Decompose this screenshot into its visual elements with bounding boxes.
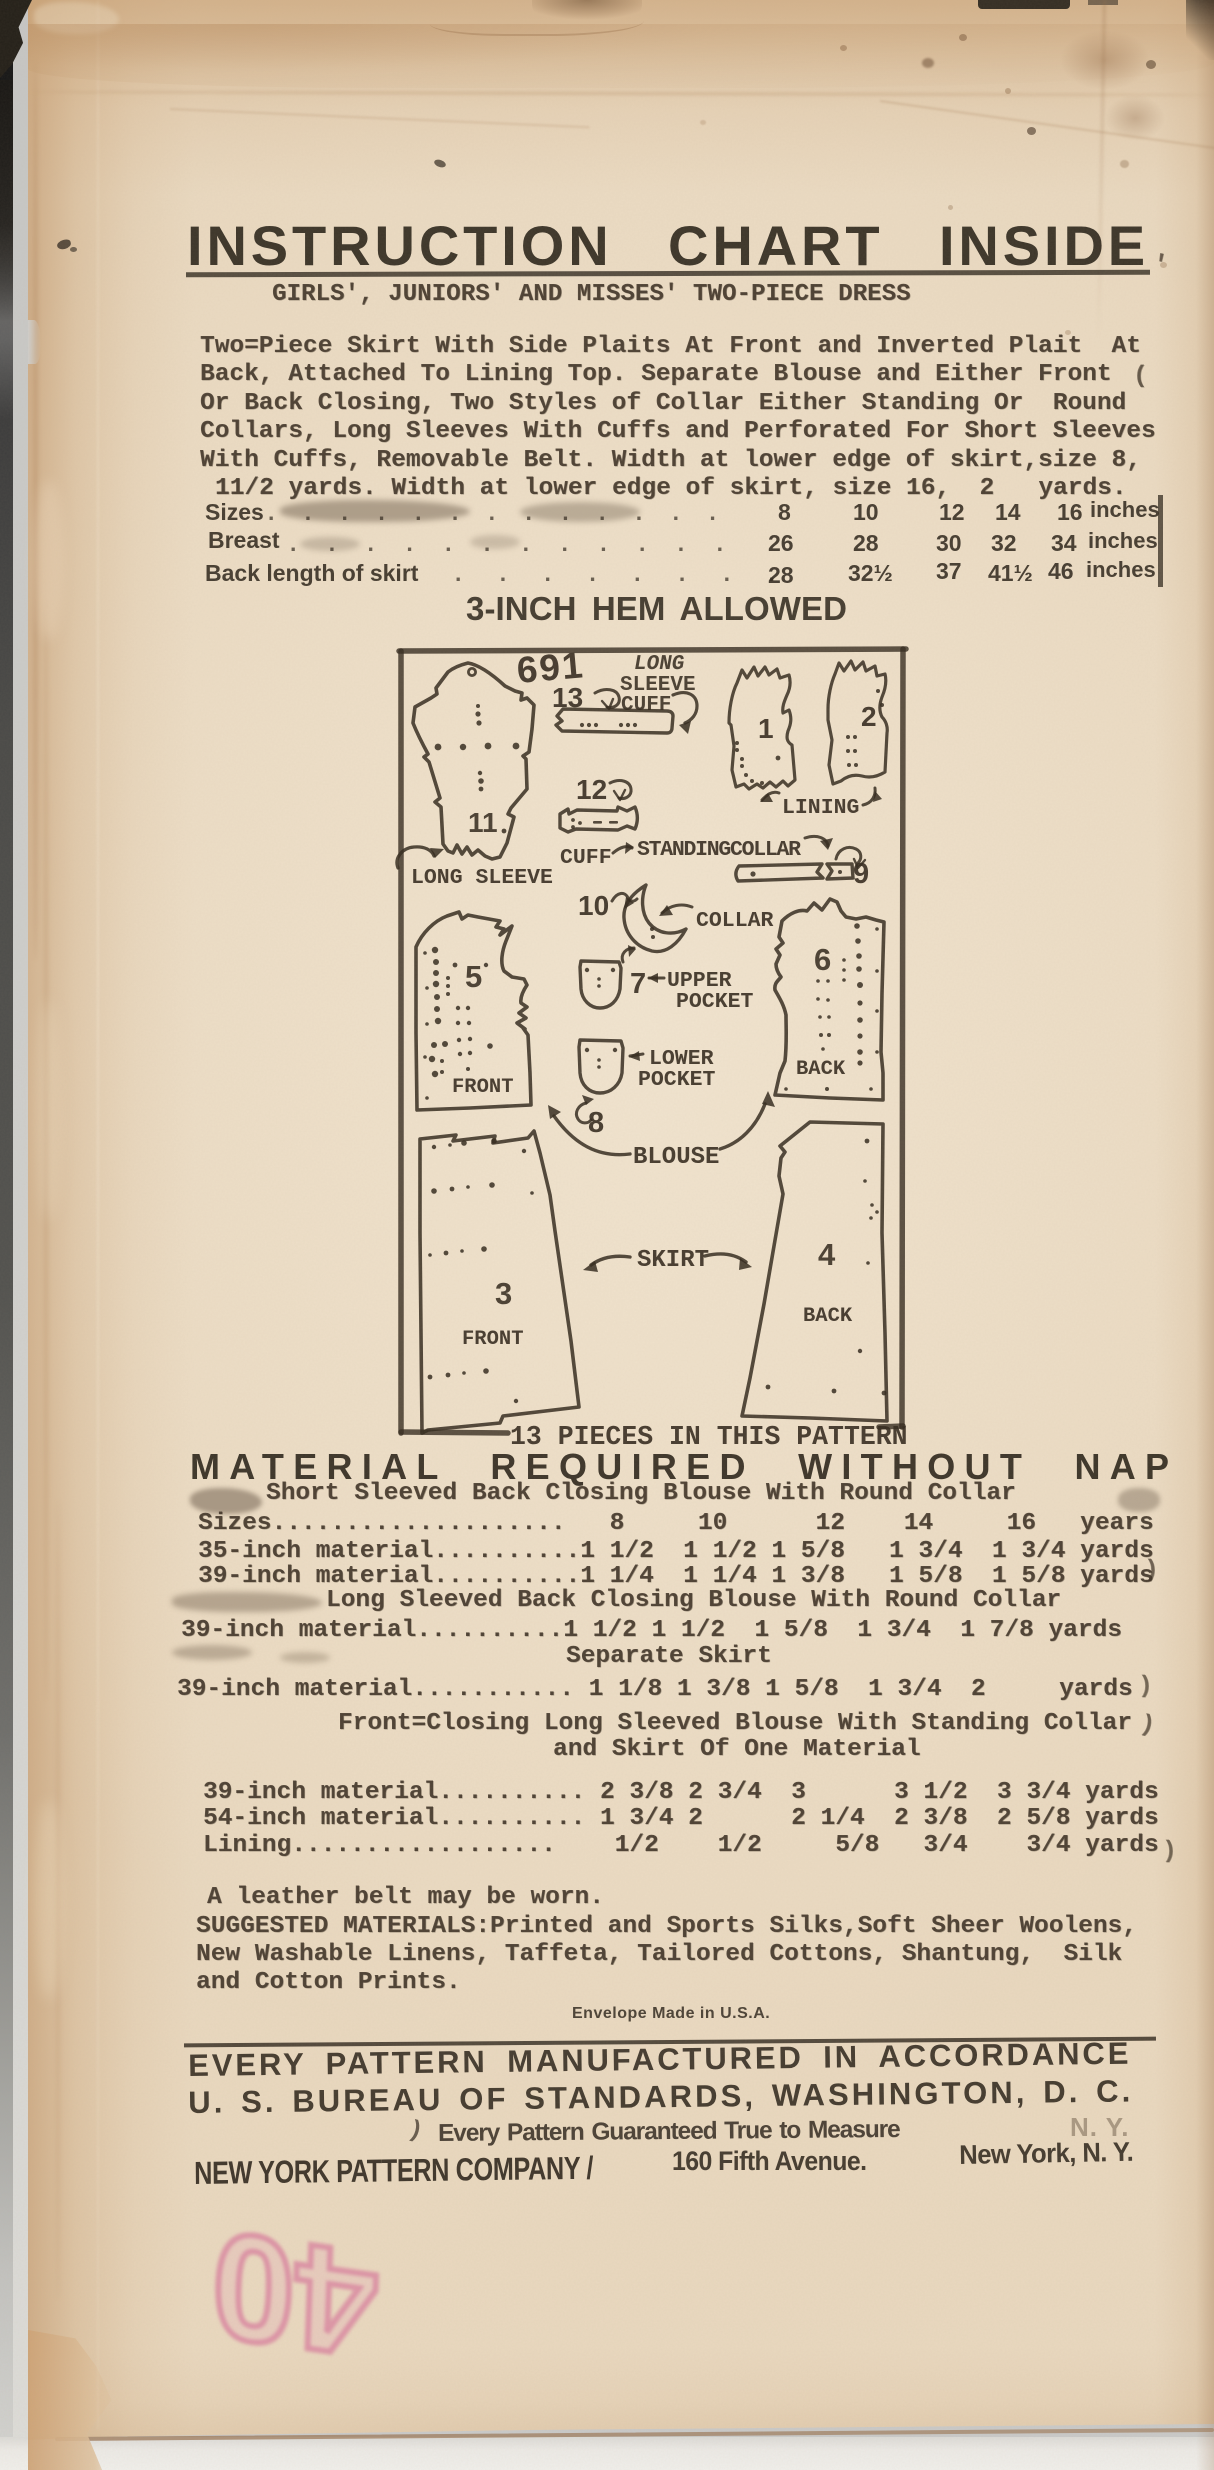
svg-text:CUFF: CUFF <box>621 694 671 717</box>
svg-text:2: 2 <box>861 701 877 732</box>
svg-text:5: 5 <box>465 959 482 994</box>
svg-text:LONG SLEEVE: LONG SLEEVE <box>411 866 553 890</box>
svg-text:POCKET: POCKET <box>676 990 754 1014</box>
svg-text:POCKET: POCKET <box>638 1068 716 1092</box>
svg-text:8: 8 <box>588 1107 604 1139</box>
svg-text:COLLAR: COLLAR <box>696 909 774 933</box>
svg-text:3: 3 <box>495 1276 512 1311</box>
svg-text:CUFF: CUFF <box>560 846 612 870</box>
svg-text:LONG: LONG <box>632 652 687 676</box>
svg-text:FRONT: FRONT <box>452 1076 514 1099</box>
svg-text:STANDINGCOLLAR: STANDINGCOLLAR <box>637 838 801 862</box>
svg-text:7: 7 <box>630 968 646 1000</box>
svg-text:BACK: BACK <box>796 1058 846 1081</box>
svg-text:SKIRT: SKIRT <box>637 1247 709 1274</box>
svg-text:10: 10 <box>578 890 609 921</box>
svg-text:BLOUSE: BLOUSE <box>633 1144 719 1171</box>
svg-text:4: 4 <box>818 1237 836 1272</box>
svg-text:BACK: BACK <box>803 1305 853 1328</box>
svg-text:FRONT: FRONT <box>462 1328 524 1351</box>
svg-text:LINING: LINING <box>782 796 859 820</box>
svg-text:11: 11 <box>468 807 498 838</box>
svg-text:6: 6 <box>814 942 831 977</box>
svg-text:1: 1 <box>758 713 774 744</box>
svg-text:12: 12 <box>576 774 607 805</box>
